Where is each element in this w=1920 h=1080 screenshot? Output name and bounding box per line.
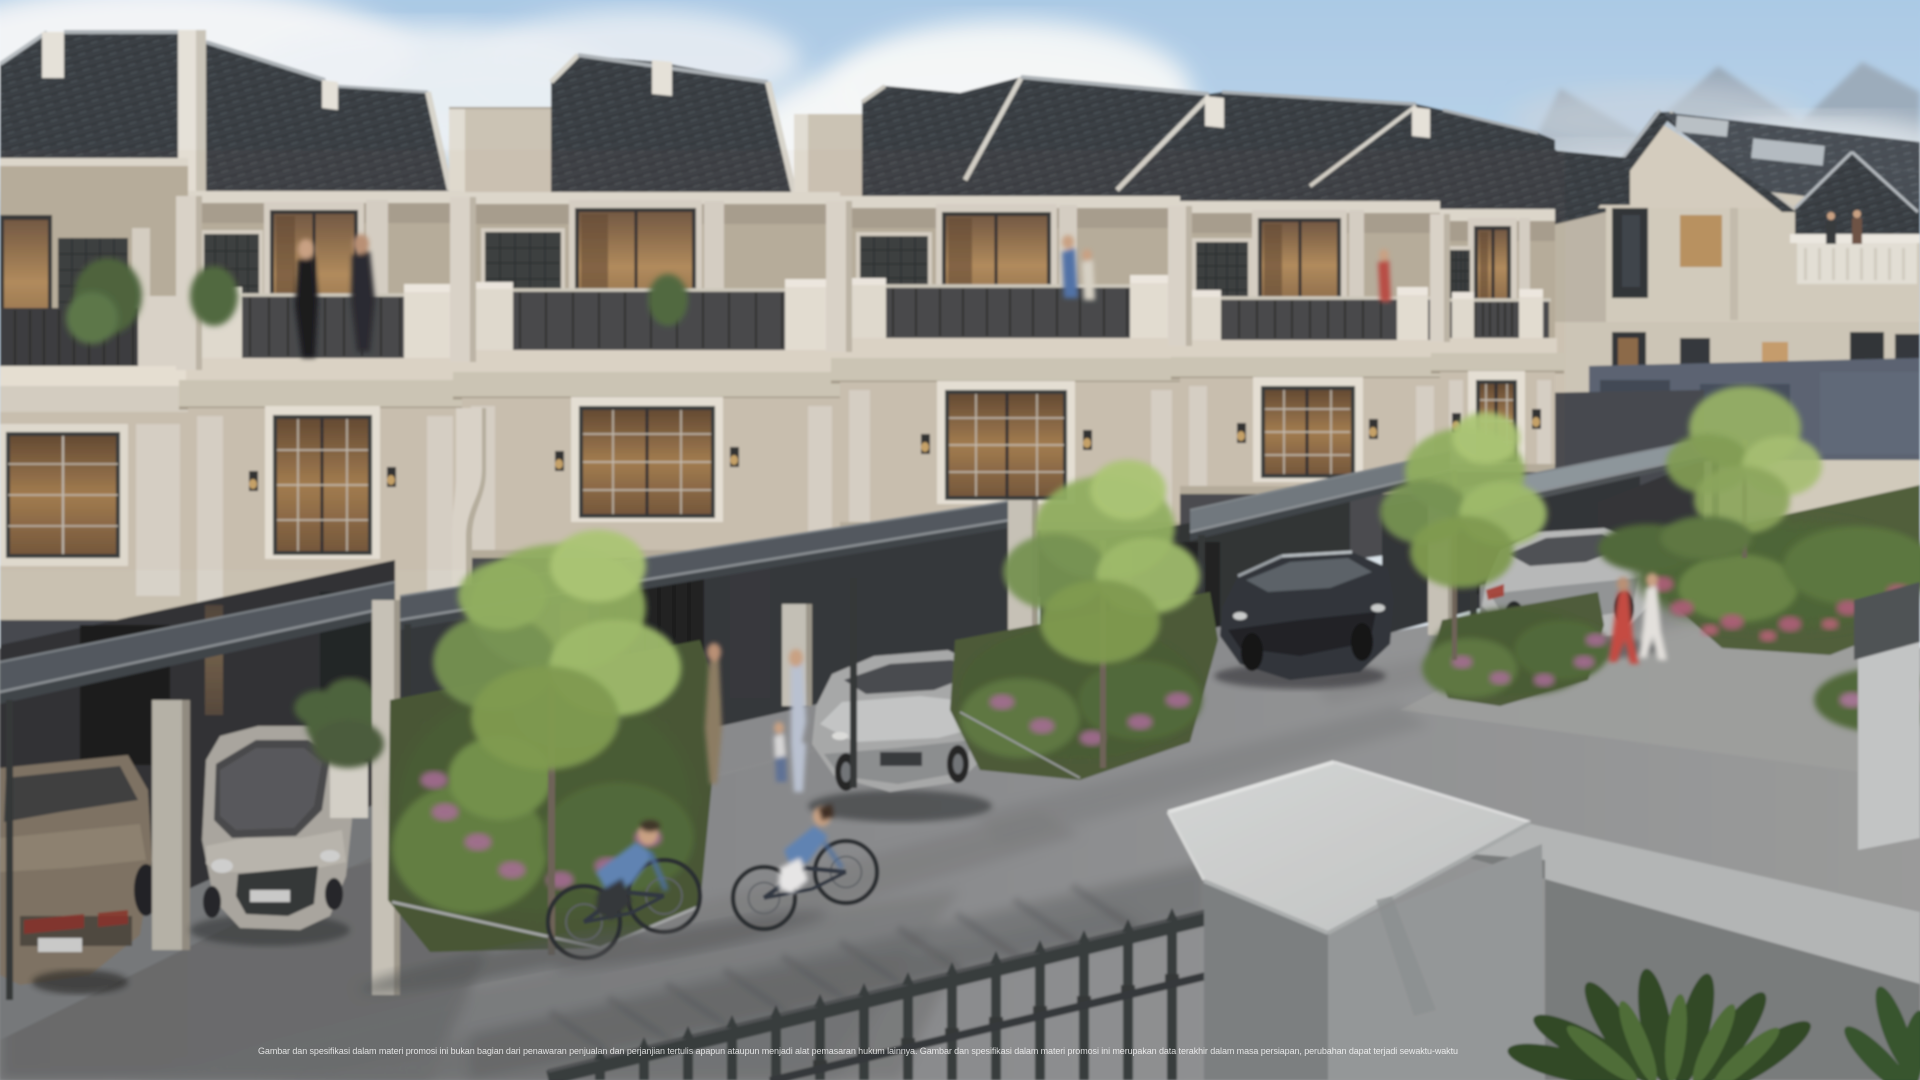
svg-text:Gambar dan spesifikasi dalam m: Gambar dan spesifikasi dalam materi prom… xyxy=(258,1046,1458,1056)
